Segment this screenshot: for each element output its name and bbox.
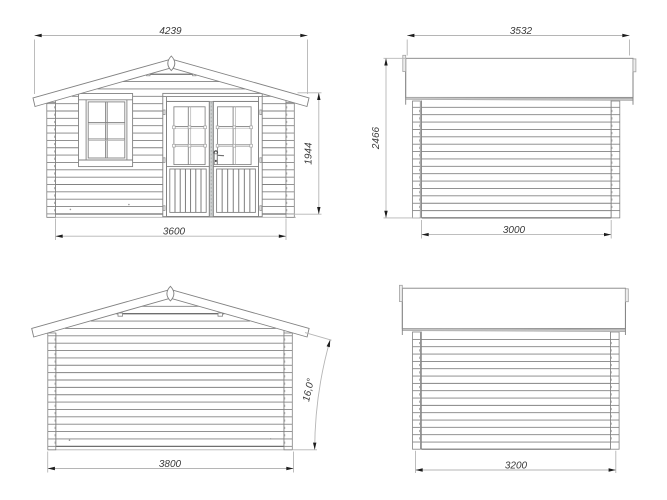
- svg-text:3600: 3600: [163, 227, 186, 238]
- svg-text:3532: 3532: [510, 26, 533, 37]
- svg-text:2466: 2466: [371, 126, 382, 150]
- svg-text:1944: 1944: [304, 142, 315, 165]
- svg-text:4239: 4239: [159, 26, 182, 37]
- svg-text:3200: 3200: [505, 461, 528, 472]
- svg-text:3000: 3000: [503, 225, 526, 236]
- svg-text:3800: 3800: [159, 459, 182, 470]
